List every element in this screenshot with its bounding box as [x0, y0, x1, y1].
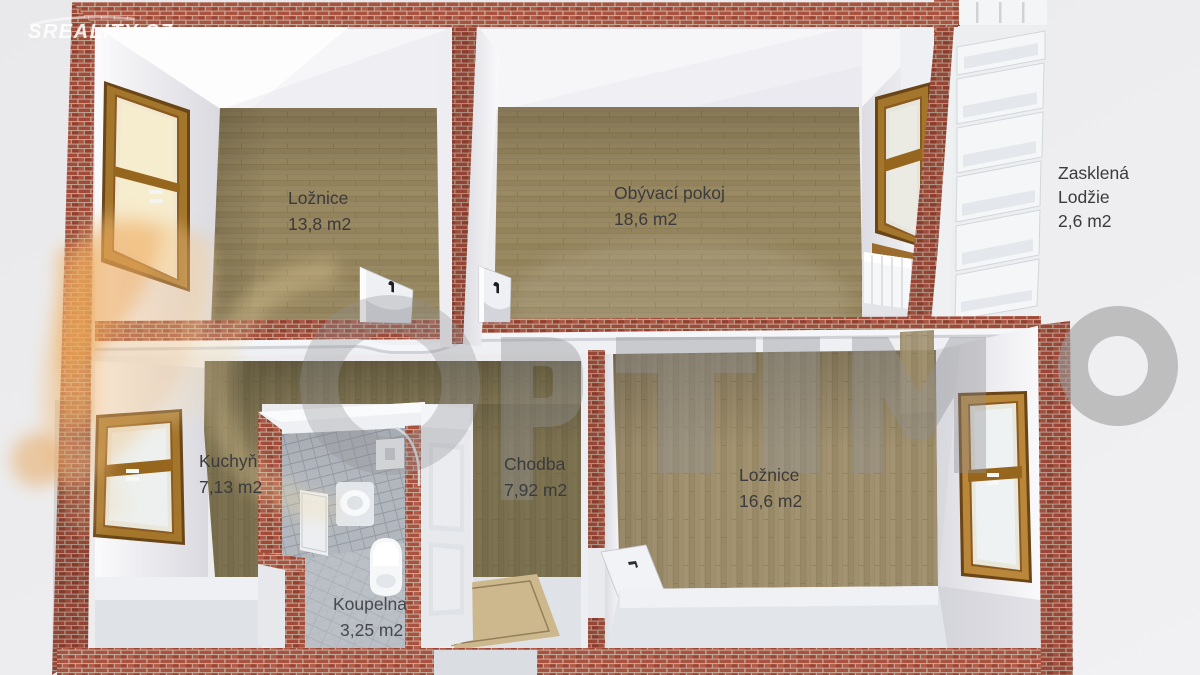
svg-text:16,6 m2: 16,6 m2 [739, 491, 802, 511]
svg-text:Koupelna: Koupelna [333, 594, 407, 614]
svg-text:7,92 m2: 7,92 m2 [504, 480, 567, 500]
svg-text:Ložnice: Ložnice [288, 188, 348, 208]
svg-text:Chodba: Chodba [504, 454, 566, 474]
svg-text:Obývací pokoj: Obývací pokoj [614, 183, 725, 203]
svg-text:Ložnice: Ložnice [739, 465, 799, 485]
svg-text:7,13 m2: 7,13 m2 [199, 477, 262, 497]
svg-text:3,25 m2: 3,25 m2 [340, 620, 403, 640]
svg-text:Lodžie: Lodžie [1058, 187, 1110, 207]
svg-text:18,6 m2: 18,6 m2 [614, 209, 677, 229]
svg-text:Zasklená: Zasklená [1058, 163, 1129, 183]
svg-text:13,8 m2: 13,8 m2 [288, 214, 351, 234]
svg-text:Kuchyň: Kuchyň [199, 451, 257, 471]
svg-text:2,6 m2: 2,6 m2 [1058, 211, 1112, 231]
svg-text:SREALITY.CZ: SREALITY.CZ [28, 21, 174, 43]
